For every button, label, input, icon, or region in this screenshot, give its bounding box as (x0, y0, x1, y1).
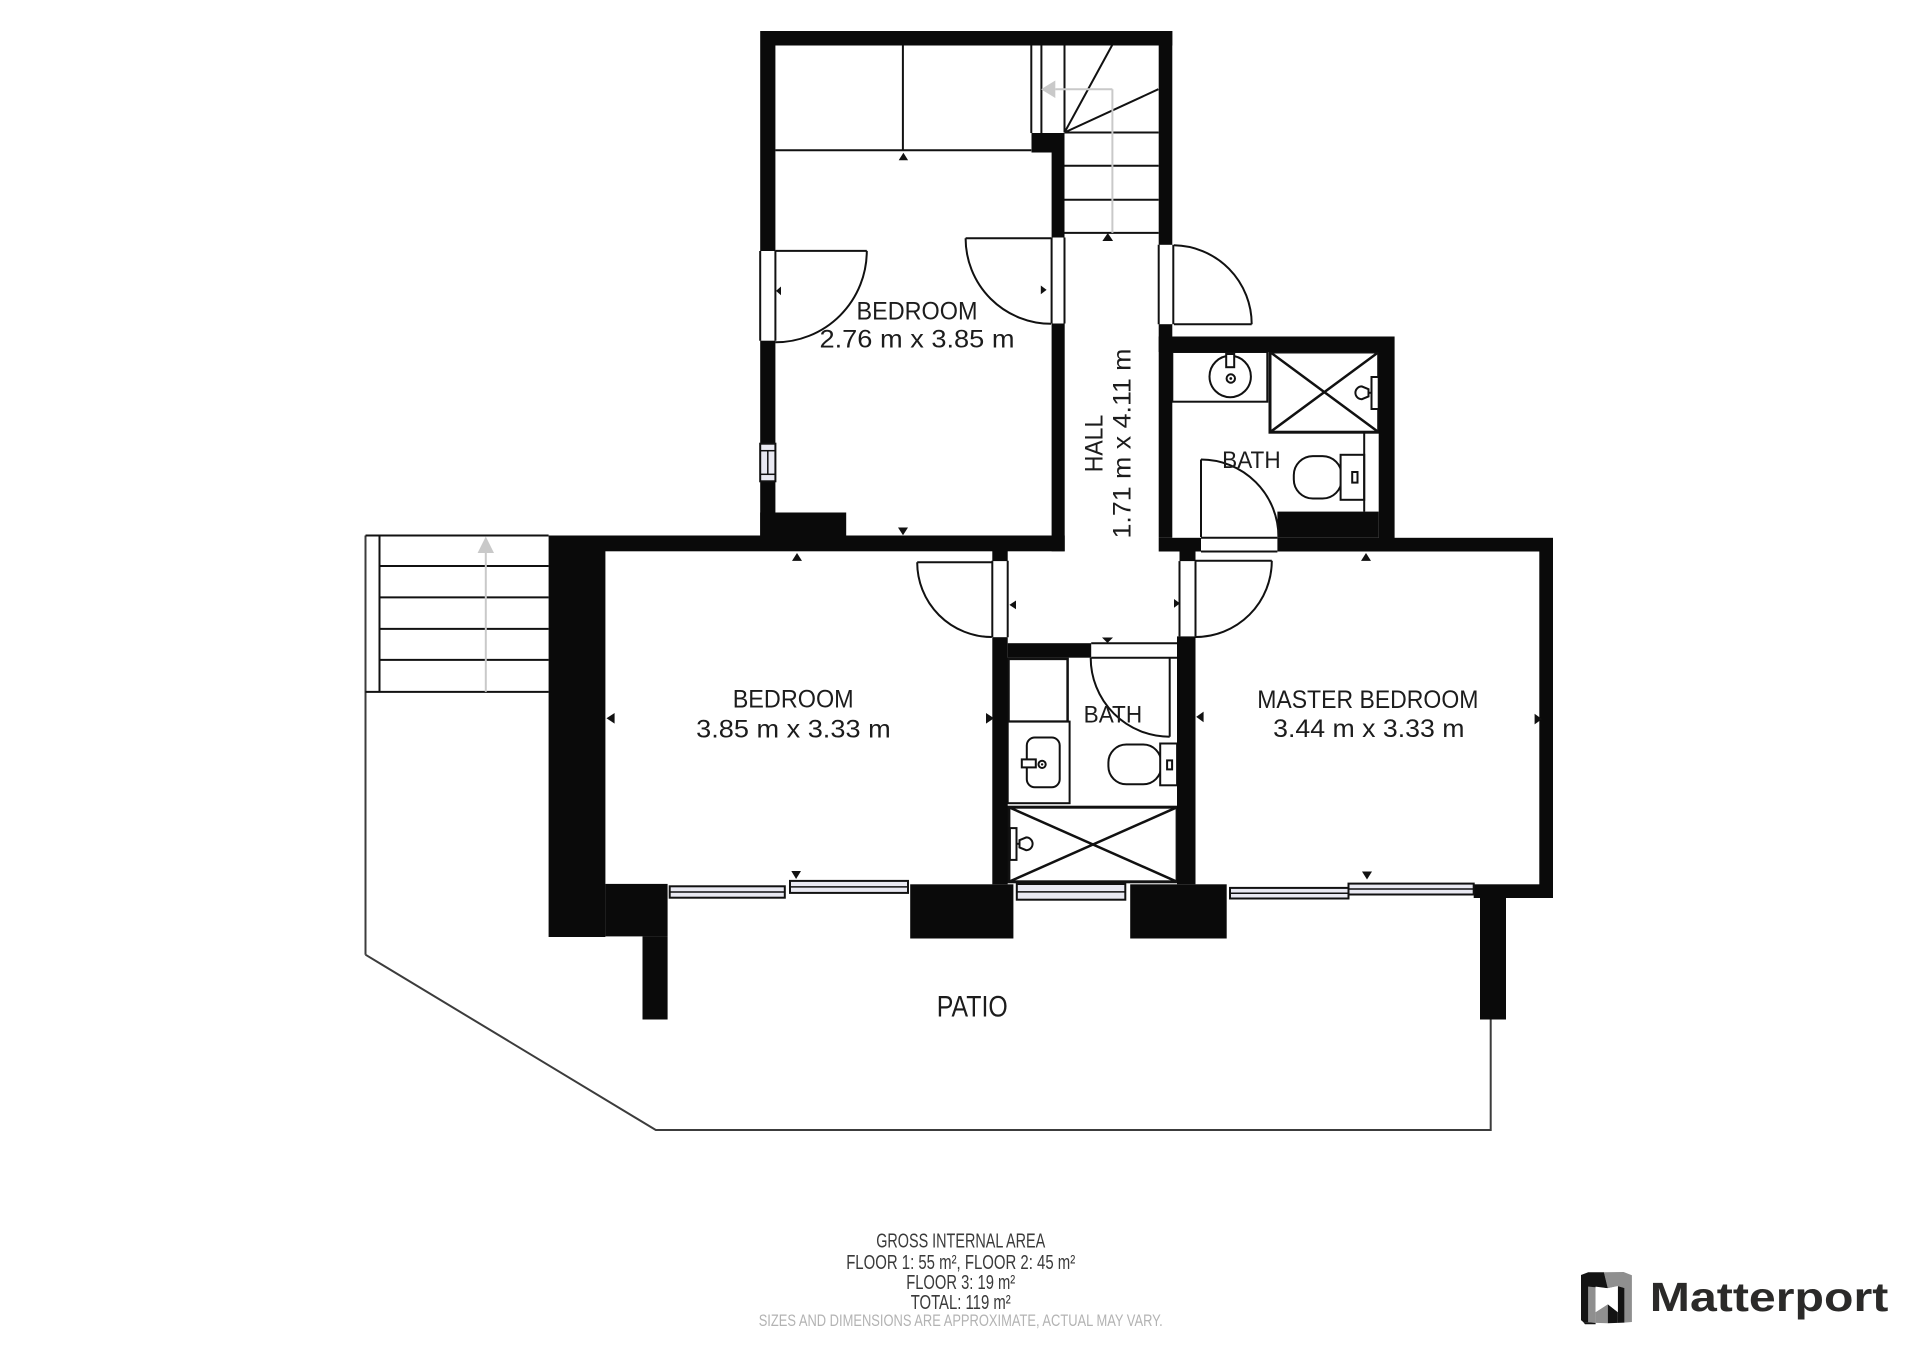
svg-text:Matterport: Matterport (1650, 1274, 1889, 1320)
svg-text:HALL: HALL (1081, 415, 1109, 473)
svg-text:PATIO: PATIO (937, 991, 1008, 1024)
svg-text:TOTAL: 119 m²: TOTAL: 119 m² (911, 1292, 1011, 1314)
svg-text:FLOOR 3: 19 m²: FLOOR 3: 19 m² (906, 1272, 1015, 1294)
svg-text:BATH: BATH (1222, 447, 1281, 474)
svg-text:3.44 m x 3.33 m: 3.44 m x 3.33 m (1273, 715, 1464, 743)
svg-text:2.76 m x 3.85 m: 2.76 m x 3.85 m (820, 325, 1015, 353)
svg-text:MASTER BEDROOM: MASTER BEDROOM (1257, 686, 1478, 714)
svg-text:1.71 m x 4.11 m: 1.71 m x 4.11 m (1109, 349, 1137, 539)
svg-text:BEDROOM: BEDROOM (733, 686, 854, 714)
svg-text:BATH: BATH (1084, 702, 1143, 729)
svg-text:GROSS INTERNAL AREA: GROSS INTERNAL AREA (876, 1230, 1045, 1252)
svg-text:BEDROOM: BEDROOM (857, 298, 978, 326)
svg-text:SIZES AND DIMENSIONS ARE APPRO: SIZES AND DIMENSIONS ARE APPROXIMATE, AC… (759, 1312, 1163, 1330)
svg-text:FLOOR 1: 55 m², FLOOR 2: 45 m²: FLOOR 1: 55 m², FLOOR 2: 45 m² (846, 1252, 1075, 1274)
svg-text:3.85 m x 3.33 m: 3.85 m x 3.33 m (696, 716, 891, 744)
